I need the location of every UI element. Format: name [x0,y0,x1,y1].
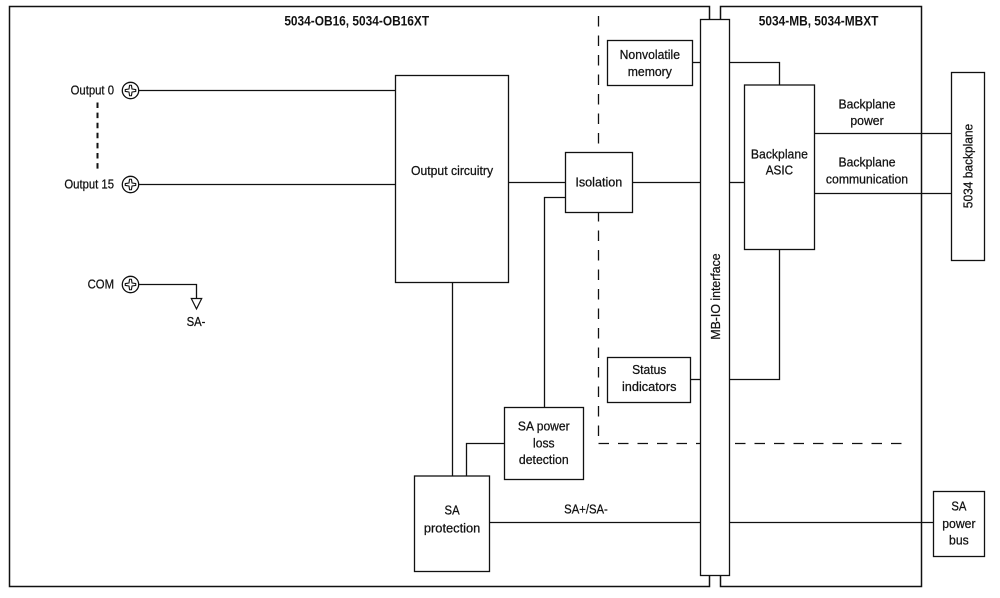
svg-text:SA-: SA- [187,314,206,329]
svg-text:SA power: SA power [518,419,570,433]
svg-text:5034 backplane: 5034 backplane [961,124,976,208]
svg-text:Output circuitry: Output circuitry [411,164,494,178]
svg-text:COM: COM [88,277,114,292]
svg-text:Output 15: Output 15 [64,177,114,192]
svg-text:bus: bus [949,533,969,547]
svg-text:SA: SA [951,499,967,514]
svg-text:ASIC: ASIC [766,163,793,178]
svg-text:Backplane: Backplane [838,155,895,169]
svg-text:Backplane: Backplane [838,97,895,111]
svg-text:Status: Status [632,363,666,377]
svg-text:Isolation: Isolation [575,174,622,189]
svg-text:SA+/SA-: SA+/SA- [564,502,608,517]
svg-text:communication: communication [826,172,908,186]
svg-text:power: power [942,517,975,531]
svg-text:Backplane: Backplane [751,147,808,161]
svg-text:power: power [850,114,883,128]
svg-text:Output 0: Output 0 [71,83,115,98]
svg-text:loss: loss [533,436,554,450]
svg-text:memory: memory [628,65,673,79]
svg-text:indicators: indicators [622,379,676,394]
svg-text:detection: detection [519,453,569,467]
svg-text:protection: protection [424,520,480,535]
svg-text:SA: SA [445,503,461,518]
svg-text:Nonvolatile: Nonvolatile [620,48,680,62]
svg-text:5034-OB16, 5034-OB16XT: 5034-OB16, 5034-OB16XT [284,13,429,29]
svg-text:5034-MB, 5034-MBXT: 5034-MB, 5034-MBXT [759,13,879,29]
svg-text:MB-IO interface: MB-IO interface [709,253,723,339]
